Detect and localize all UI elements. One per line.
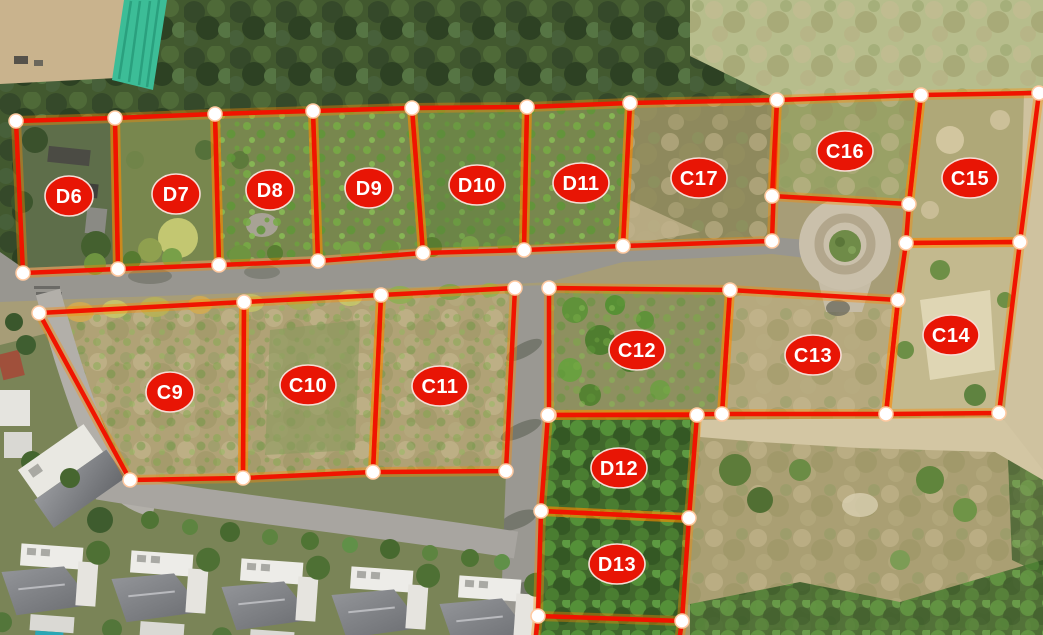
plot-label-text: C9 (157, 382, 184, 404)
boundary-vertex (914, 88, 928, 102)
boundary-vertex (517, 243, 531, 257)
boundary-vertex (531, 609, 545, 623)
boundary-vertex (765, 189, 779, 203)
plot-label-C14: C14 (923, 315, 979, 355)
plot-label-text: C10 (289, 375, 327, 397)
boundary-vertex (405, 101, 419, 115)
boundary-vertex (534, 504, 548, 518)
boundary-vertex (366, 465, 380, 479)
tree (60, 468, 80, 488)
clearing-object (14, 56, 28, 64)
boundary-vertex (416, 246, 430, 260)
plot-label-C12: C12 (609, 330, 665, 370)
boundary-vertex (208, 107, 222, 121)
plot-label-text: D12 (600, 458, 638, 480)
clearing-object (34, 60, 43, 66)
plot-label-text: D7 (163, 184, 190, 206)
boundary-vertex (715, 407, 729, 421)
boundary-vertex (108, 111, 122, 125)
boundary-vertex (675, 614, 689, 628)
boundary-vertex (306, 104, 320, 118)
boundary-vertex (682, 511, 696, 525)
plot-label-D13: D13 (589, 544, 645, 584)
plot-label-text: C15 (951, 168, 989, 190)
boundary-vertex (770, 93, 784, 107)
boundary-vertex (902, 197, 916, 211)
tree (87, 507, 113, 533)
boundary-vertex (723, 283, 737, 297)
boundary-vertex (690, 408, 704, 422)
boundary-vertex (1013, 235, 1027, 249)
boundary-vertex (541, 408, 555, 422)
aerial-plot-map: D6D7D8D9D10D11C17C16C15C14C13C12C9C10C11… (0, 0, 1043, 635)
plot-label-text: D10 (458, 175, 496, 197)
boundary-vertex (992, 406, 1006, 420)
plot-label-text: D13 (598, 554, 636, 576)
boundary-vertex (212, 258, 226, 272)
boundary-vertex (499, 464, 513, 478)
boundary-vertex (542, 281, 556, 295)
boundary-vertex (9, 114, 23, 128)
plot-label-C16: C16 (817, 131, 873, 171)
plot-label-text: D11 (562, 173, 599, 195)
plot-label-text: C12 (618, 340, 656, 362)
plot-label-text: C16 (826, 141, 864, 163)
boundary-vertex (1032, 86, 1043, 100)
boundary-vertex (32, 306, 46, 320)
plot-label-text: D6 (56, 186, 83, 208)
boundary-vertex (899, 236, 913, 250)
boundary-vertex (237, 295, 251, 309)
boundary-vertex (616, 239, 630, 253)
boundary-vertex (508, 281, 522, 295)
boundary-vertex (16, 266, 30, 280)
boundary-vertex (123, 473, 137, 487)
plot-label-text: D9 (356, 178, 383, 200)
boundary-vertex (236, 471, 250, 485)
plot-label-D6: D6 (45, 176, 93, 216)
plot-label-C15: C15 (942, 158, 998, 198)
dirt-clearing (0, 0, 128, 84)
plot-label-text: C11 (421, 376, 458, 398)
boundary-vertex (374, 288, 388, 302)
boundary-vertex (765, 234, 779, 248)
road-marking (34, 286, 60, 289)
plot-label-text: C14 (932, 325, 971, 347)
boundary-vertex (311, 254, 325, 268)
plot-label-C17: C17 (671, 158, 727, 198)
boundary-vertex (520, 100, 534, 114)
boundary-vertex (111, 262, 125, 276)
plot-label-D12: D12 (591, 448, 647, 488)
plot-label-D9: D9 (345, 168, 393, 208)
plot-label-D7: D7 (152, 174, 200, 214)
plot-label-D8: D8 (246, 170, 294, 210)
plot-label-text: C13 (794, 345, 832, 367)
plot-label-C10: C10 (280, 365, 336, 405)
plot-label-text: C17 (680, 168, 718, 190)
plot-label-D10: D10 (449, 165, 505, 205)
boundary-vertex (623, 96, 637, 110)
plot-label-text: D8 (257, 180, 284, 202)
plot-label-C9: C9 (146, 372, 194, 412)
boundary-vertex (891, 293, 905, 307)
boundary-vertex (879, 407, 893, 421)
plot-label-D11: D11 (553, 163, 609, 203)
plot-label-C11: C11 (412, 366, 468, 406)
plot-label-C13: C13 (785, 335, 841, 375)
